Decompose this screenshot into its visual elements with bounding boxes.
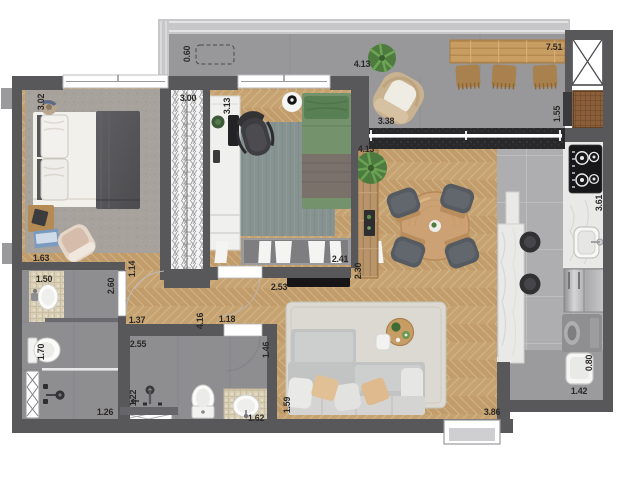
svg-text:1.59: 1.59 (282, 397, 292, 414)
svg-text:0.60: 0.60 (182, 46, 192, 63)
svg-text:2.41: 2.41 (332, 254, 349, 264)
svg-text:1.63: 1.63 (33, 253, 50, 263)
svg-text:1.22: 1.22 (128, 390, 138, 407)
svg-text:3.86: 3.86 (484, 407, 501, 417)
svg-text:1.42: 1.42 (571, 386, 588, 396)
svg-text:1.62: 1.62 (248, 413, 265, 423)
svg-text:2.53: 2.53 (271, 282, 288, 292)
svg-text:3.61: 3.61 (594, 195, 604, 212)
svg-text:4.13: 4.13 (358, 144, 375, 154)
svg-text:1.37: 1.37 (129, 315, 146, 325)
svg-text:1.26: 1.26 (97, 407, 114, 417)
svg-text:1.70: 1.70 (36, 344, 46, 361)
svg-text:1.46: 1.46 (261, 342, 271, 359)
svg-text:1.50: 1.50 (36, 274, 53, 284)
svg-text:0.80: 0.80 (584, 355, 594, 372)
svg-text:1.14: 1.14 (127, 261, 137, 278)
svg-text:2.30: 2.30 (353, 263, 363, 280)
svg-text:3.02: 3.02 (36, 94, 46, 111)
svg-text:2.60: 2.60 (106, 278, 116, 295)
svg-text:1.18: 1.18 (219, 314, 236, 324)
svg-text:1.55: 1.55 (552, 106, 562, 123)
svg-text:7.51: 7.51 (546, 42, 563, 52)
svg-text:3.38: 3.38 (378, 116, 395, 126)
svg-text:2.55: 2.55 (130, 339, 147, 349)
svg-text:4.16: 4.16 (195, 313, 205, 330)
svg-text:3.00: 3.00 (180, 93, 197, 103)
svg-text:4.13: 4.13 (354, 59, 371, 69)
svg-text:3.13: 3.13 (222, 98, 232, 115)
